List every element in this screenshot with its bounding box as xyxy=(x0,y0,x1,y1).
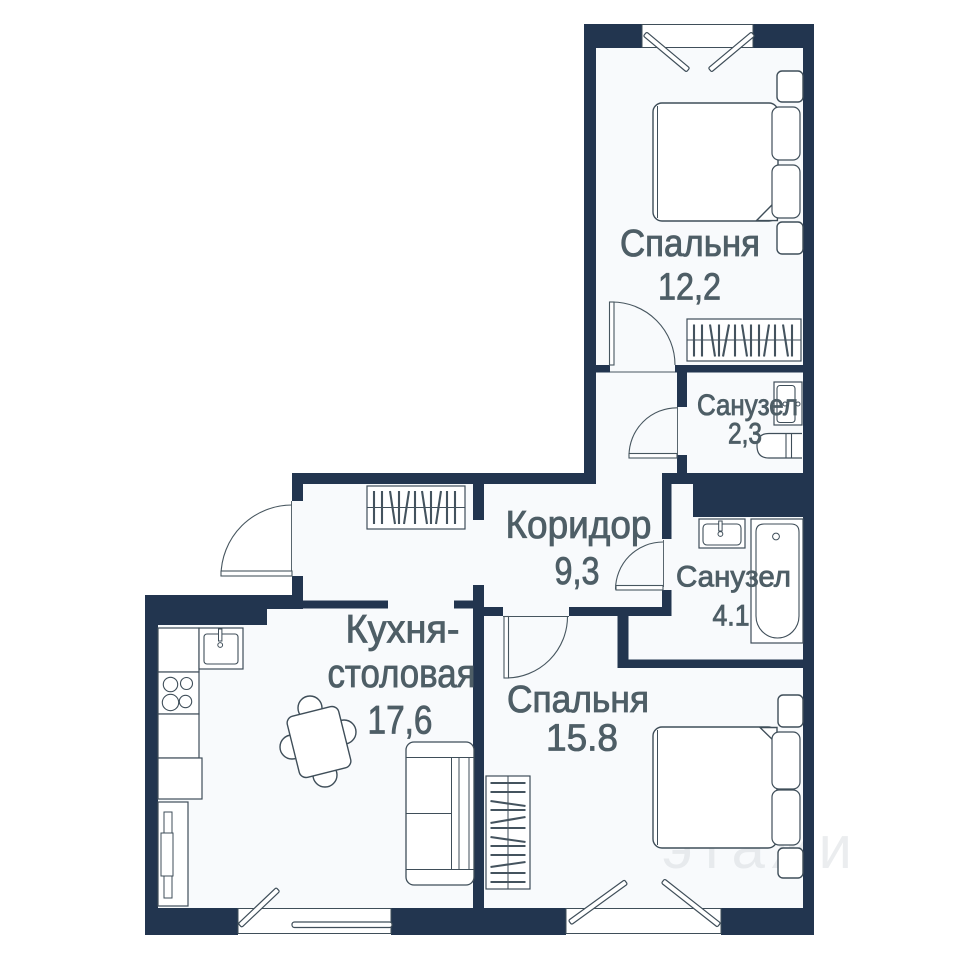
svg-text:Спальня: Спальня xyxy=(620,223,760,265)
svg-text:15.8: 15.8 xyxy=(546,718,618,760)
svg-text:Санузел: Санузел xyxy=(676,561,791,594)
svg-text:12,2: 12,2 xyxy=(658,267,721,309)
svg-text:Коридор: Коридор xyxy=(506,504,652,547)
svg-text:столовая: столовая xyxy=(328,652,476,696)
svg-text:Спальня: Спальня xyxy=(507,679,649,721)
svg-text:4.1: 4.1 xyxy=(713,600,750,633)
svg-text:17,6: 17,6 xyxy=(368,699,433,743)
svg-text:Кухня-: Кухня- xyxy=(346,608,460,652)
svg-text:9,3: 9,3 xyxy=(555,550,600,593)
svg-text:2,3: 2,3 xyxy=(728,418,762,451)
